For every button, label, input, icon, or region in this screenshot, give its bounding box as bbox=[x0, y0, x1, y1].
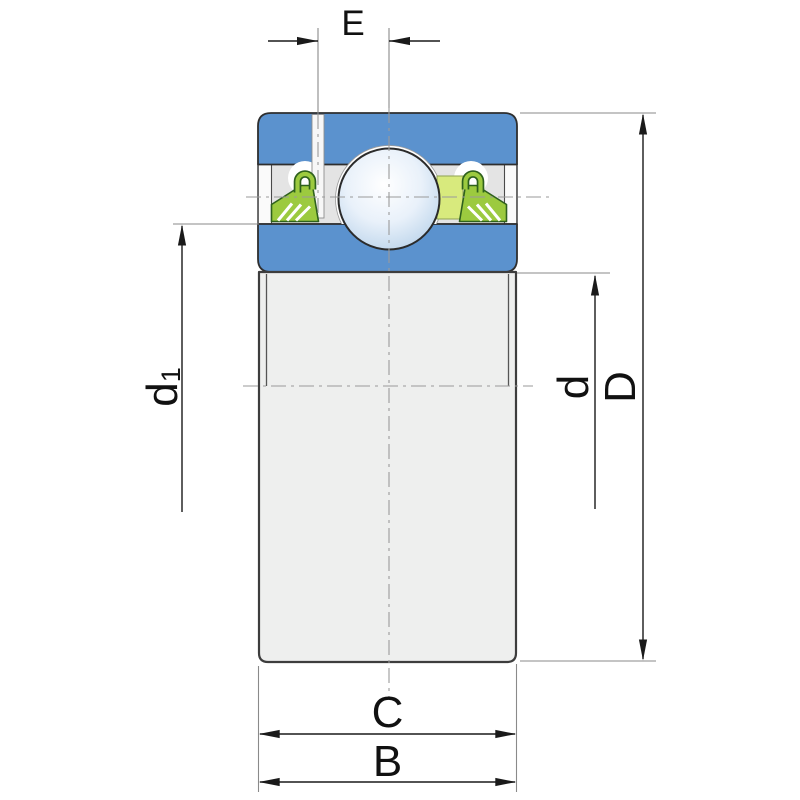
bearing-cross-section bbox=[258, 113, 517, 272]
label-d1-subscript: 1 bbox=[156, 367, 186, 382]
label-E: E bbox=[341, 4, 364, 43]
label-B: B bbox=[373, 737, 402, 786]
label-C: C bbox=[372, 688, 404, 737]
label-d: d bbox=[549, 375, 598, 399]
inner-ring-extension bbox=[259, 272, 516, 662]
label-d1-base: d bbox=[138, 382, 187, 406]
technical-drawing-page: E d1 d D C B bbox=[0, 0, 800, 800]
outer-ring-side-face-left bbox=[259, 165, 272, 223]
inner-ring-body bbox=[259, 272, 516, 662]
label-D: D bbox=[596, 371, 645, 403]
bearing-drawing-canvas: E d1 d D C B bbox=[0, 0, 800, 800]
